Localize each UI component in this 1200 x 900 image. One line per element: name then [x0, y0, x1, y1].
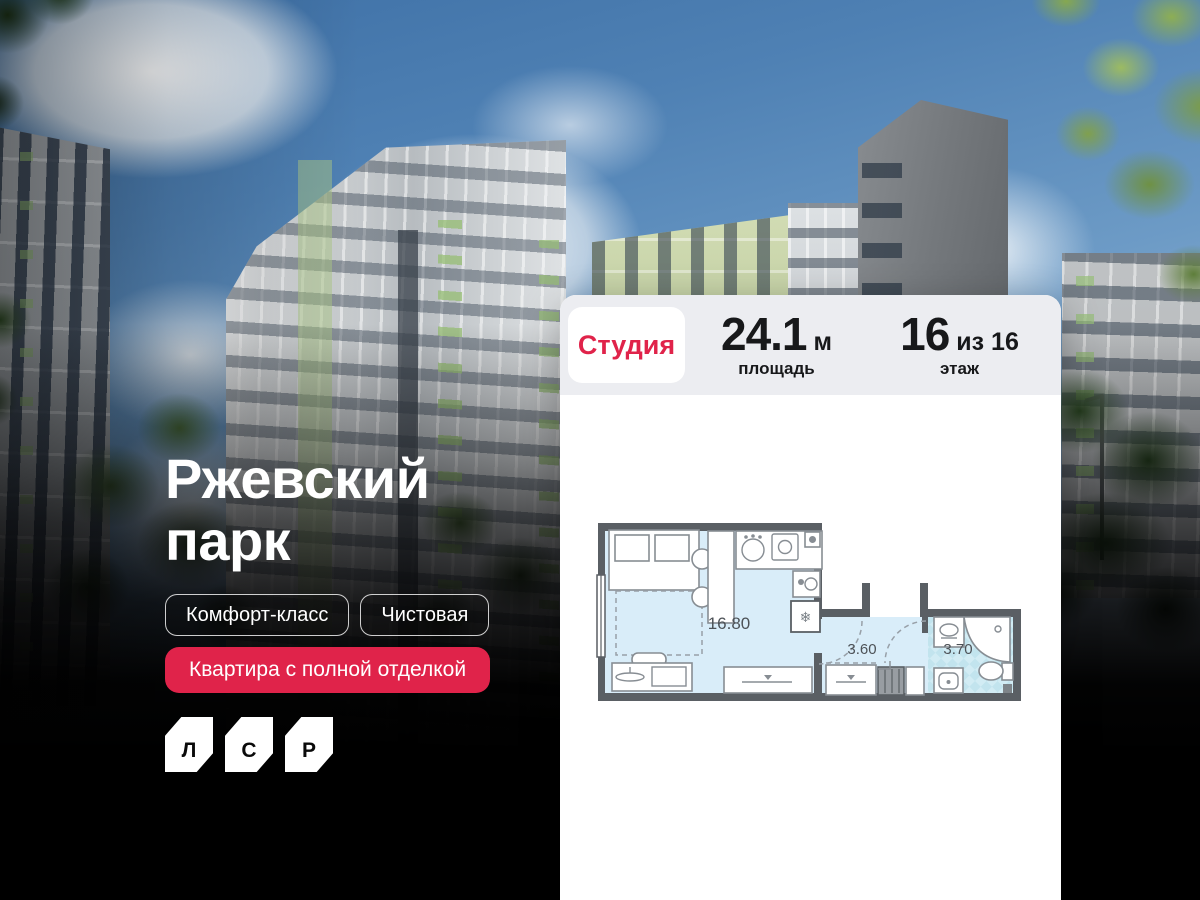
hall-area-label: 3.60 — [847, 641, 876, 658]
area-unit: м — [814, 328, 833, 357]
fridge: ❄ — [791, 601, 820, 632]
wardrobe-room — [724, 667, 812, 693]
apartment-card-header: Студия 24.1 м площадь 16 из 16 этаж — [560, 295, 1061, 395]
area-value: 24.1 — [721, 311, 807, 357]
project-title-line1: Ржевский — [165, 447, 430, 510]
drain-box — [1003, 684, 1012, 693]
full-finishing-button[interactable]: Квартира с полной отделкой — [165, 647, 490, 693]
tag-finishing: Чистовая — [360, 594, 489, 636]
lsr-logo-tile-s: С — [225, 717, 273, 772]
apartment-card[interactable]: Студия 24.1 м площадь 16 из 16 этаж — [560, 295, 1061, 900]
real-estate-banner[interactable]: Ржевскийпарк Комфорт-класс Чистовая Квар… — [0, 0, 1200, 900]
project-title: Ржевскийпарк — [165, 448, 430, 572]
toilet — [979, 662, 1013, 680]
floor-of-total: из 16 — [956, 328, 1019, 357]
floor-value-row: 16 из 16 — [900, 311, 1019, 357]
lsr-logo: Л С Р — [165, 717, 333, 772]
tag-comfort-class: Комфорт-класс — [165, 594, 349, 636]
floor-value: 16 — [900, 311, 949, 357]
svg-text:❄: ❄ — [800, 610, 812, 626]
lsr-logo-tile-l: Л — [165, 717, 213, 772]
project-title-line2: парк — [165, 509, 290, 572]
hall-cabinet — [878, 667, 924, 695]
floor-plan: ❄ — [596, 517, 1026, 709]
wardrobe-hall — [826, 665, 876, 695]
window-symbol — [597, 575, 605, 657]
area-caption: площадь — [738, 359, 814, 379]
lsr-logo-tile-r: Р — [285, 717, 333, 772]
kitchen-counter — [736, 531, 822, 569]
room-area-label: 16.80 — [708, 614, 751, 633]
apartment-type-badge: Студия — [568, 307, 685, 383]
cooktop — [793, 571, 820, 597]
floor-stat: 16 из 16 этаж — [868, 311, 1051, 379]
area-stat: 24.1 м площадь — [685, 311, 868, 379]
tag-row: Комфорт-класс Чистовая — [165, 594, 489, 636]
area-value-row: 24.1 м — [721, 311, 832, 357]
bath-area-label: 3.70 — [943, 641, 972, 658]
bath-sink — [934, 668, 963, 693]
floor-caption: этаж — [940, 359, 979, 379]
apartment-stats: 24.1 м площадь 16 из 16 этаж — [685, 311, 1051, 379]
